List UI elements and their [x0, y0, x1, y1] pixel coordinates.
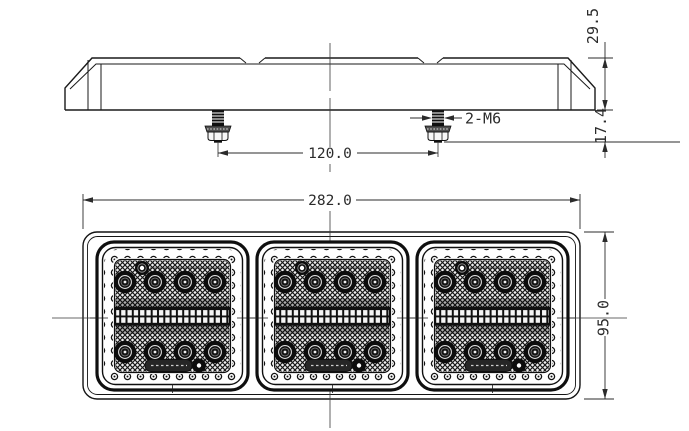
- lens-module-1: [90, 242, 255, 393]
- dim-label-stud-protrusion: 17.4: [592, 108, 610, 144]
- dim-label-stud-spacing: 120.0: [308, 146, 352, 162]
- dim-label-overall-height: 95.0: [595, 300, 613, 336]
- callout-stud-spec: 2-M6: [410, 110, 501, 128]
- front-view: 282.0 95.0: [52, 193, 627, 428]
- dim-label-stud-spec: 2-M6: [465, 110, 501, 128]
- drawing-sheet: 120.0 2-M6 29.5 17.4 282.0: [0, 0, 689, 431]
- dim-overall-height: 95.0: [584, 232, 614, 399]
- mounting-stud-left: [205, 110, 231, 157]
- side-view: 120.0 2-M6 29.5 17.4: [65, 8, 680, 172]
- dim-label-overall-width: 282.0: [308, 193, 352, 209]
- dim-body-depth: 29.5: [584, 8, 613, 110]
- lens-module-2: [250, 242, 415, 393]
- dim-stud-spacing: 120.0: [218, 146, 438, 162]
- dim-overall-width: 282.0: [83, 193, 580, 229]
- side-lens-notches: [240, 58, 443, 63]
- side-end-seams: [88, 60, 571, 110]
- lens-module-3: [410, 242, 575, 393]
- mounting-stud-right: [425, 110, 451, 157]
- dim-label-body-depth: 29.5: [584, 8, 602, 44]
- lamp-technical-drawing: 120.0 2-M6 29.5 17.4 282.0: [0, 0, 689, 431]
